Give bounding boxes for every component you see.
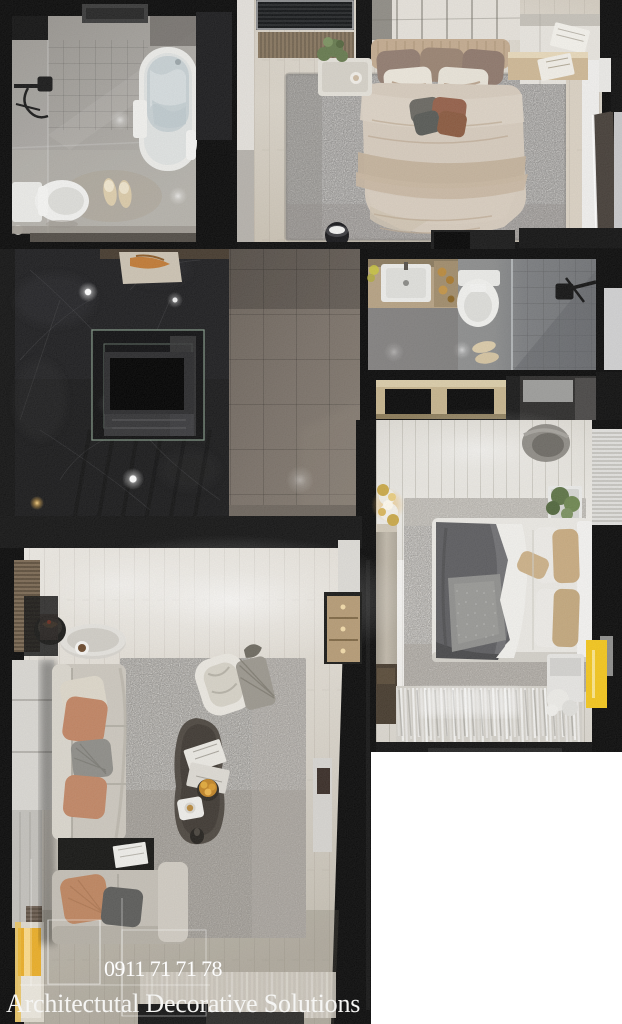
svg-text:Architectutal Decorative Solut: Architectutal Decorative Solutions	[6, 989, 360, 1018]
svg-text:0911 71 71 78: 0911 71 71 78	[104, 956, 222, 981]
